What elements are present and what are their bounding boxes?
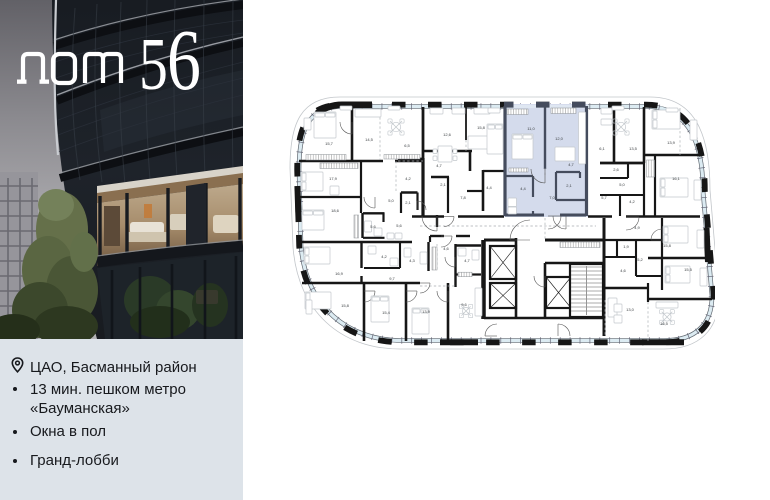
svg-text:15,5: 15,5 <box>684 267 693 272</box>
svg-text:11,0: 11,0 <box>527 126 535 131</box>
svg-text:2,1: 2,1 <box>440 182 446 187</box>
svg-text:15,4: 15,4 <box>382 310 391 315</box>
svg-text:4,4: 4,4 <box>486 185 492 190</box>
svg-text:13,5: 13,5 <box>629 146 638 151</box>
svg-text:7,8: 7,8 <box>460 195 466 200</box>
svg-text:2,1: 2,1 <box>405 200 411 205</box>
svg-text:15,8: 15,8 <box>663 243 672 248</box>
svg-text:1,9: 1,9 <box>623 244 629 249</box>
svg-text:5,0: 5,0 <box>619 182 625 187</box>
svg-text:12,0: 12,0 <box>555 136 564 141</box>
svg-text:16,1: 16,1 <box>672 176 681 181</box>
svg-text:7,0: 7,0 <box>549 195 555 200</box>
svg-text:15,7: 15,7 <box>325 141 334 146</box>
svg-text:4,7: 4,7 <box>568 162 574 167</box>
svg-text:15,8: 15,8 <box>341 303 350 308</box>
svg-text:4,2: 4,2 <box>381 254 387 259</box>
svg-text:5: 5 <box>139 24 168 105</box>
svg-text:4,6: 4,6 <box>443 246 449 251</box>
svg-text:4,6: 4,6 <box>620 268 626 273</box>
svg-text:6: 6 <box>167 11 201 108</box>
svg-text:12,6: 12,6 <box>443 132 452 137</box>
svg-text:5,6: 5,6 <box>370 224 376 229</box>
svg-text:9,6: 9,6 <box>461 302 467 307</box>
svg-text:6,1: 6,1 <box>599 146 605 151</box>
svg-text:5,0: 5,0 <box>388 198 394 203</box>
svg-text:6,5: 6,5 <box>404 143 410 148</box>
svg-text:13,0: 13,0 <box>626 307 635 312</box>
svg-text:4,9: 4,9 <box>634 225 640 230</box>
svg-text:14,5: 14,5 <box>365 137 374 142</box>
svg-text:4,7: 4,7 <box>464 258 470 263</box>
svg-text:4,3: 4,3 <box>409 258 415 263</box>
svg-text:16,9: 16,9 <box>335 271 344 276</box>
svg-text:5,2: 5,2 <box>637 257 643 262</box>
svg-text:15,8: 15,8 <box>477 125 486 130</box>
svg-text:4,2: 4,2 <box>405 176 411 181</box>
svg-text:4,7: 4,7 <box>436 163 442 168</box>
svg-text:16,5: 16,5 <box>660 321 669 326</box>
svg-text:13,9: 13,9 <box>667 140 676 145</box>
svg-text:5,7: 5,7 <box>601 195 607 200</box>
svg-text:9,7: 9,7 <box>389 276 395 281</box>
svg-text:2,1: 2,1 <box>566 183 572 188</box>
svg-text:17,9: 17,9 <box>329 176 338 181</box>
svg-text:4,4: 4,4 <box>520 186 526 191</box>
svg-text:4,2: 4,2 <box>629 199 635 204</box>
svg-text:13,9: 13,9 <box>422 309 431 314</box>
svg-text:2,6: 2,6 <box>613 167 619 172</box>
svg-text:18,6: 18,6 <box>331 208 340 213</box>
svg-text:5,6: 5,6 <box>396 223 402 228</box>
